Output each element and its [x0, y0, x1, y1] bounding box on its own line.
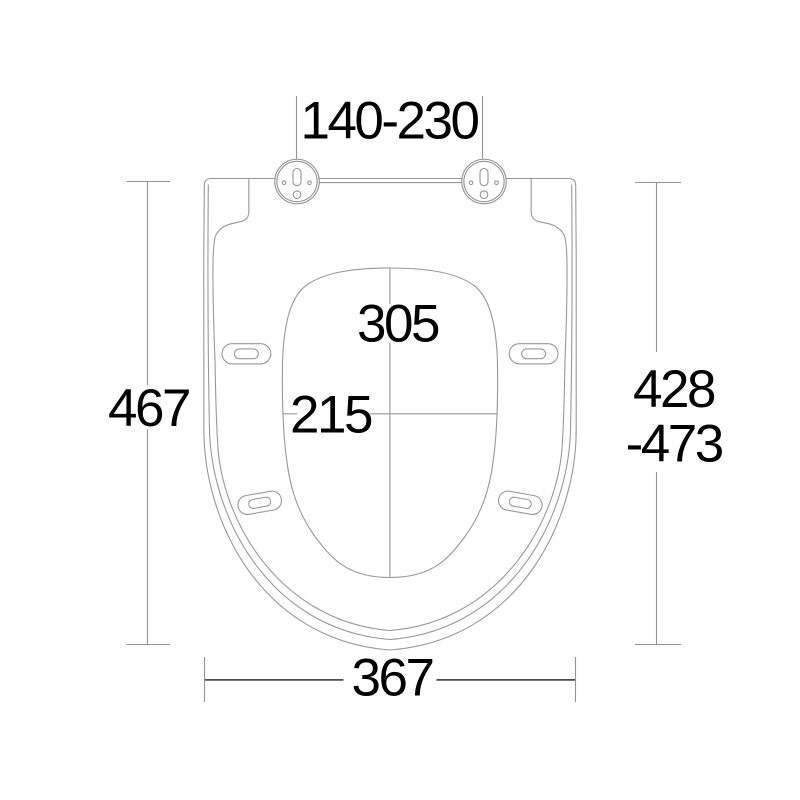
svg-text:467: 467 [108, 379, 189, 438]
svg-text:140-230: 140-230 [300, 92, 478, 151]
svg-text:367: 367 [352, 648, 433, 707]
svg-text:215: 215 [290, 386, 372, 445]
svg-text:305: 305 [357, 295, 439, 354]
svg-text:428: 428 [633, 360, 715, 419]
svg-text:-473: -473 [626, 415, 723, 474]
